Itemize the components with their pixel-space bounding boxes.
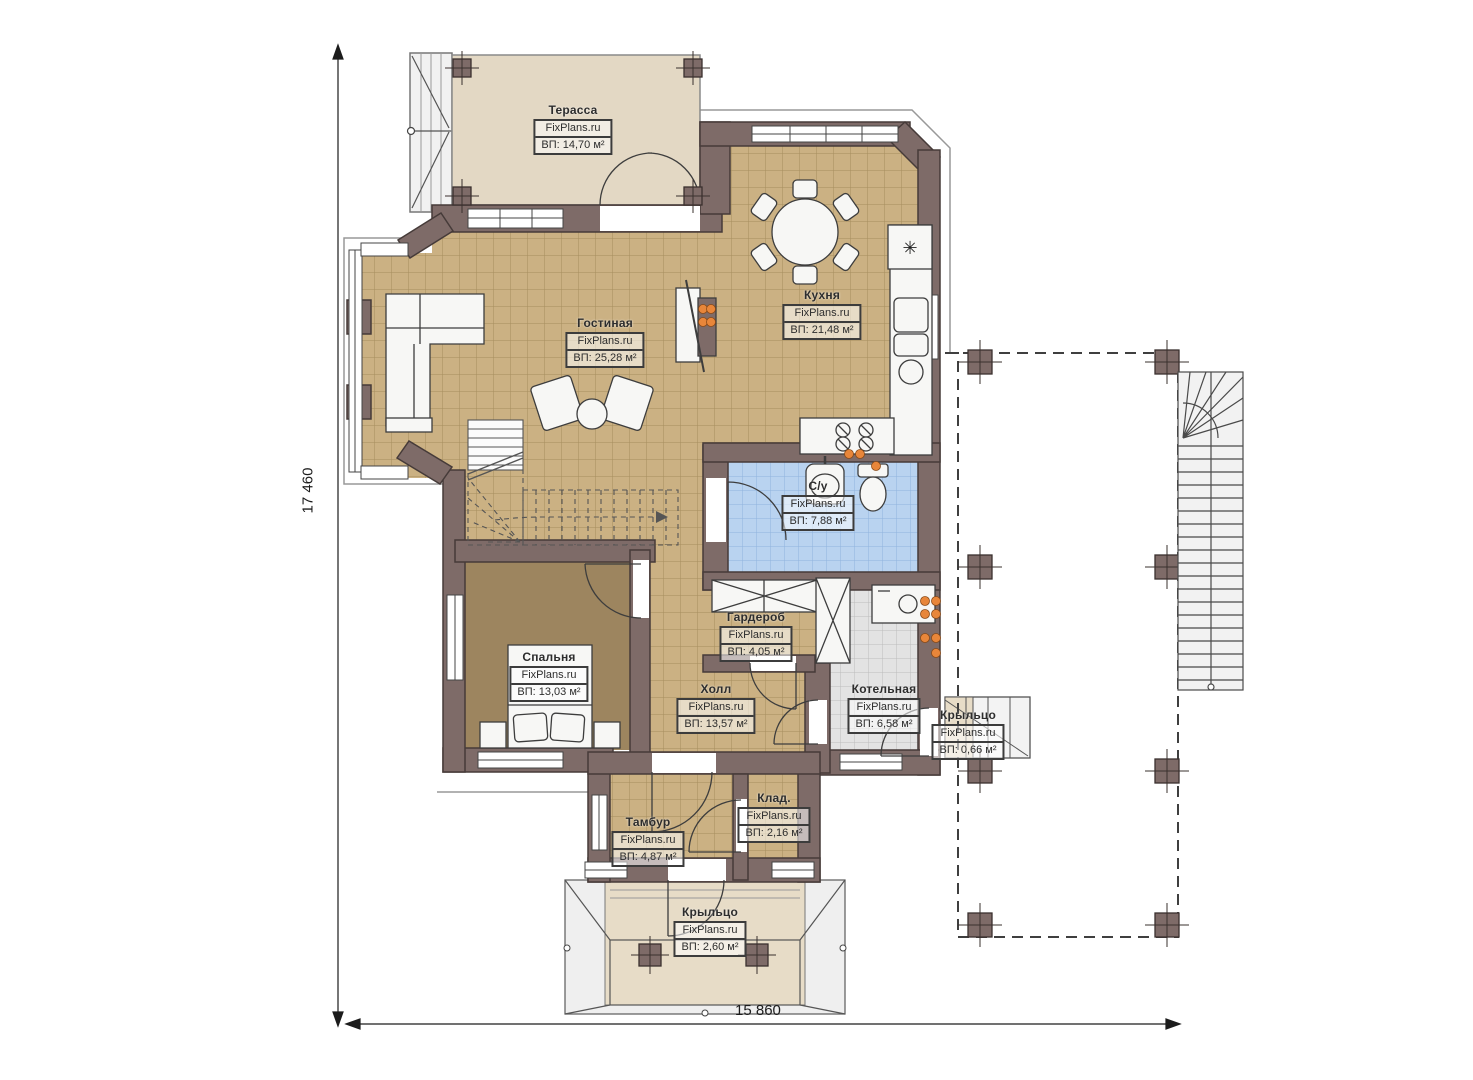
room-info-box: FixPlans.ru ВП: 2,16 м² [737, 807, 810, 843]
room-label-bedroom: Спальня FixPlans.ru ВП: 13,03 м² [509, 650, 588, 702]
room-name: Котельная [847, 682, 920, 696]
room-info-box: FixPlans.ru ВП: 4,87 м² [611, 831, 684, 867]
room-name: С/у [781, 479, 854, 493]
brand-watermark: FixPlans.ru [849, 700, 918, 717]
room-info-box: FixPlans.ru ВП: 7,88 м² [781, 495, 854, 531]
dimension-bottom: 15 860 [735, 1002, 781, 1019]
svg-text:✳: ✳ [902, 238, 917, 258]
room-area: ВП: 7,88 м² [783, 514, 852, 529]
room-name: Холл [676, 682, 755, 696]
room-label-porch-bottom: Крыльцо FixPlans.ru ВП: 2,60 м² [673, 905, 746, 957]
room-label-tambur: Тамбур FixPlans.ru ВП: 4,87 м² [611, 815, 684, 867]
room-label-boiler: Котельная FixPlans.ru ВП: 6,58 м² [847, 682, 920, 734]
room-area: ВП: 0,66 м² [933, 743, 1002, 758]
room-label-kitchen: Кухня FixPlans.ru ВП: 21,48 м² [782, 288, 861, 340]
room-name: Гардероб [719, 610, 792, 624]
room-area: ВП: 14,70 м² [535, 138, 610, 153]
room-name: Крыльцо [931, 708, 1004, 722]
room-label-hall: Холл FixPlans.ru ВП: 13,57 м² [676, 682, 755, 734]
room-info-box: FixPlans.ru ВП: 6,58 м² [847, 698, 920, 734]
room-label-living: Гостиная FixPlans.ru ВП: 25,28 м² [565, 316, 644, 368]
room-info-box: FixPlans.ru ВП: 21,48 м² [782, 304, 861, 340]
room-info-box: FixPlans.ru ВП: 0,66 м² [931, 724, 1004, 760]
room-area: ВП: 2,60 м² [675, 940, 744, 955]
room-area: ВП: 13,03 м² [511, 685, 586, 700]
brand-watermark: FixPlans.ru [783, 497, 852, 514]
brand-watermark: FixPlans.ru [678, 700, 753, 717]
room-area: ВП: 4,05 м² [721, 645, 790, 660]
brand-watermark: FixPlans.ru [613, 833, 682, 850]
room-info-box: FixPlans.ru ВП: 2,60 м² [673, 921, 746, 957]
room-info-box: FixPlans.ru ВП: 13,03 м² [509, 666, 588, 702]
brand-watermark: FixPlans.ru [784, 306, 859, 323]
brand-watermark: FixPlans.ru [675, 923, 744, 940]
room-label-porch-right: Крыльцо FixPlans.ru ВП: 0,66 м² [931, 708, 1004, 760]
brand-watermark: FixPlans.ru [535, 121, 610, 138]
room-name: Спальня [509, 650, 588, 664]
room-area: ВП: 21,48 м² [784, 323, 859, 338]
external-stair [1178, 372, 1243, 690]
room-label-wardrobe: Гардероб FixPlans.ru ВП: 4,05 м² [719, 610, 792, 662]
room-area: ВП: 25,28 м² [567, 351, 642, 366]
room-name: Тамбур [611, 815, 684, 829]
dimension-left: 17 460 [300, 461, 317, 521]
room-name: Клад. [737, 791, 810, 805]
room-area: ВП: 6,58 м² [849, 717, 918, 732]
brand-watermark: FixPlans.ru [511, 668, 586, 685]
brand-watermark: FixPlans.ru [567, 334, 642, 351]
brand-watermark: FixPlans.ru [933, 726, 1002, 743]
terrace-side-stair [408, 53, 453, 212]
brand-watermark: FixPlans.ru [739, 809, 808, 826]
room-area: ВП: 2,16 м² [739, 826, 808, 841]
room-name: Гостиная [565, 316, 644, 330]
floor-plan: ✳ [0, 0, 1473, 1080]
room-label-bathroom: С/у FixPlans.ru ВП: 7,88 м² [781, 479, 854, 531]
room-name: Терасса [533, 103, 612, 117]
room-info-box: FixPlans.ru ВП: 13,57 м² [676, 698, 755, 734]
room-area: ВП: 13,57 м² [678, 717, 753, 732]
room-label-terrace: Терасса FixPlans.ru ВП: 14,70 м² [533, 103, 612, 155]
room-area: ВП: 4,87 м² [613, 850, 682, 865]
brand-watermark: FixPlans.ru [721, 628, 790, 645]
room-name: Кухня [782, 288, 861, 302]
room-info-box: FixPlans.ru ВП: 25,28 м² [565, 332, 644, 368]
room-info-box: FixPlans.ru ВП: 14,70 м² [533, 119, 612, 155]
floor-corridor [650, 548, 703, 596]
room-info-box: FixPlans.ru ВП: 4,05 м² [719, 626, 792, 662]
room-name: Крыльцо [673, 905, 746, 919]
room-label-storage: Клад. FixPlans.ru ВП: 2,16 м² [737, 791, 810, 843]
